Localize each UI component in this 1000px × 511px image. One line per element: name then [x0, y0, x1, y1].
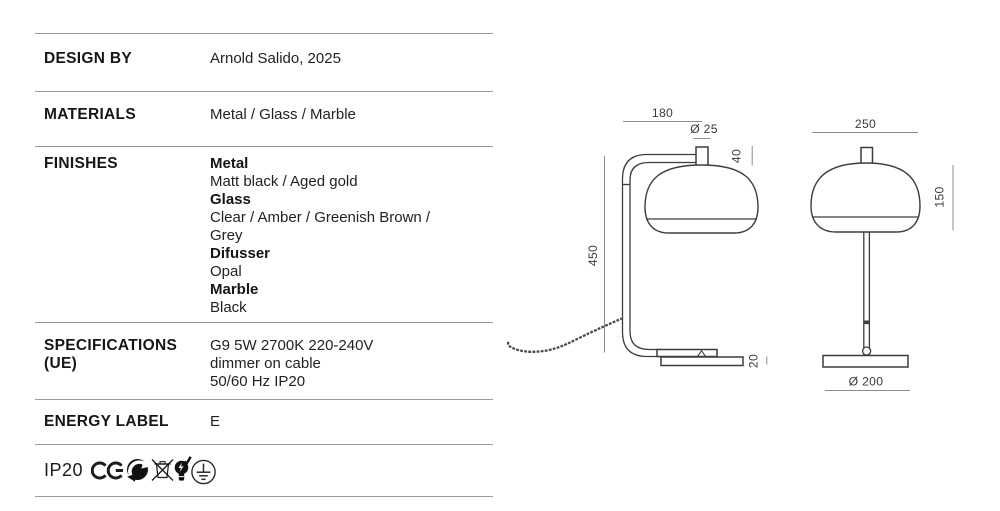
front-shade-height-dim-label: 150: [933, 186, 947, 207]
side-marble-base: [661, 357, 743, 366]
side-top-cap: [696, 147, 708, 166]
side-cap-height-dim-label: 40: [730, 149, 744, 163]
front-view-drawing: 250 150 Ø 200: [811, 117, 953, 391]
front-glass-shade: [811, 163, 920, 232]
product-spec-sheet: DESIGN BY Arnold Salido, 2025 MATERIALS …: [0, 0, 1000, 511]
front-marble-base: [823, 356, 908, 368]
side-base-thickness-dim-label: 20: [747, 354, 761, 368]
stem-foot-detail: [863, 347, 871, 355]
side-glass-shade: [645, 165, 758, 233]
side-view-drawing: 180 Ø 25 40 450 20: [508, 106, 767, 368]
side-height-dim-label: 450: [586, 245, 600, 266]
technical-drawings: 180 Ø 25 40 450 20: [0, 0, 1000, 511]
side-foot-plate: [657, 350, 717, 357]
front-width-dim-label: 250: [855, 117, 876, 131]
side-width-dim-label: 180: [652, 106, 673, 120]
stem-joint: [864, 321, 870, 325]
side-tube-diameter-label: Ø 25: [690, 122, 718, 136]
front-base-diameter-label: Ø 200: [849, 375, 884, 389]
